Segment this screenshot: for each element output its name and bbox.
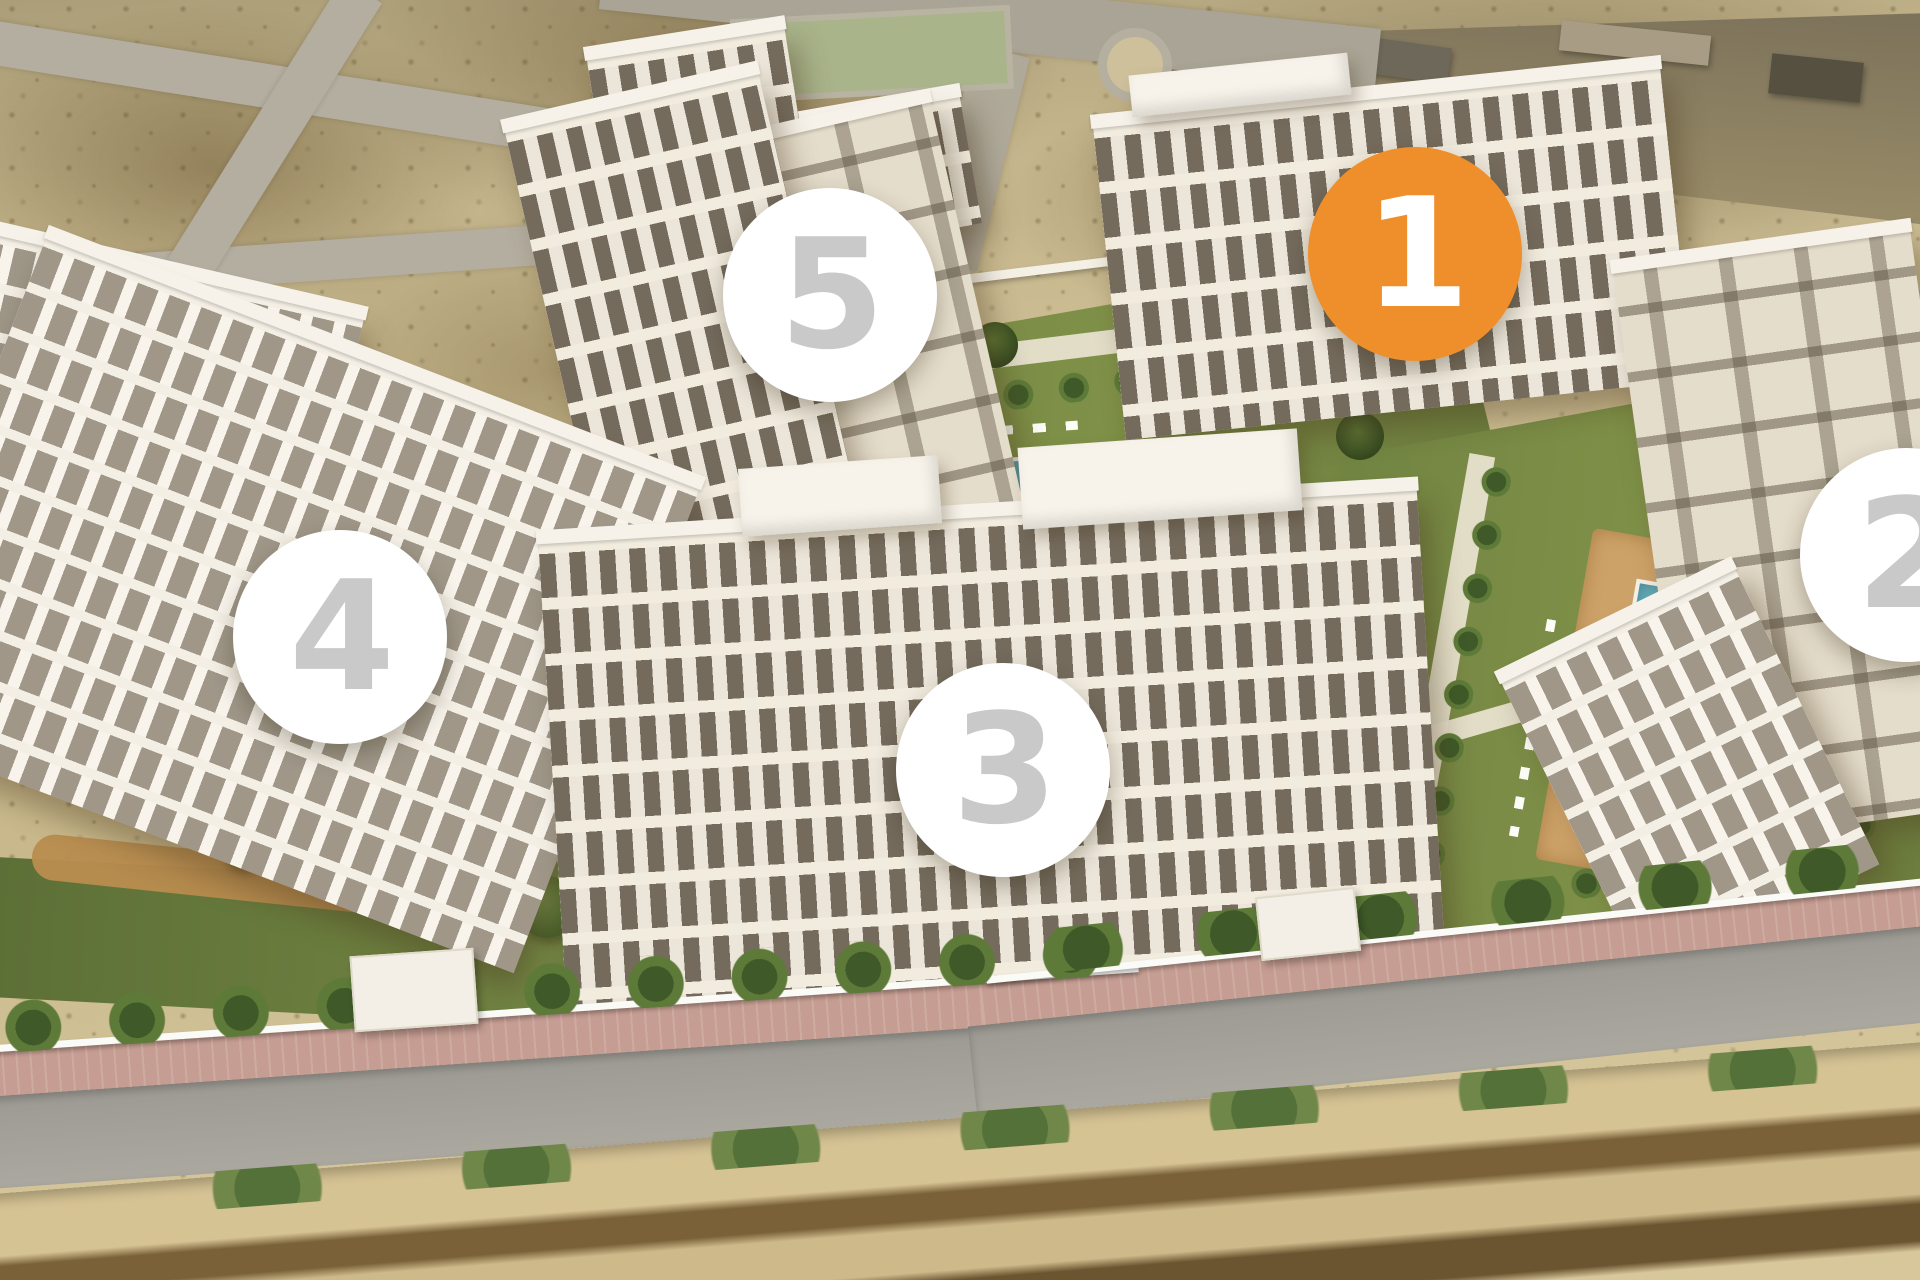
building-2-marker-label: 2 bbox=[1856, 479, 1920, 631]
entrance-gate bbox=[350, 948, 479, 1032]
building-1-marker-label: 1 bbox=[1364, 178, 1466, 330]
building-4-marker[interactable]: 4 bbox=[233, 530, 447, 744]
building-5-marker[interactable]: 5 bbox=[723, 188, 937, 402]
aerial-development-render: 1 2 3 4 5 bbox=[0, 0, 1920, 1280]
building-1-marker[interactable]: 1 bbox=[1308, 147, 1522, 361]
building-3-marker[interactable]: 3 bbox=[896, 663, 1110, 877]
building-4-marker-label: 4 bbox=[289, 561, 391, 713]
building-5-marker-label: 5 bbox=[779, 219, 881, 371]
rooftop-structure bbox=[738, 455, 942, 537]
building-3-marker-label: 3 bbox=[952, 694, 1054, 846]
entrance-gate bbox=[1255, 887, 1361, 961]
palm-tree bbox=[1336, 412, 1384, 460]
